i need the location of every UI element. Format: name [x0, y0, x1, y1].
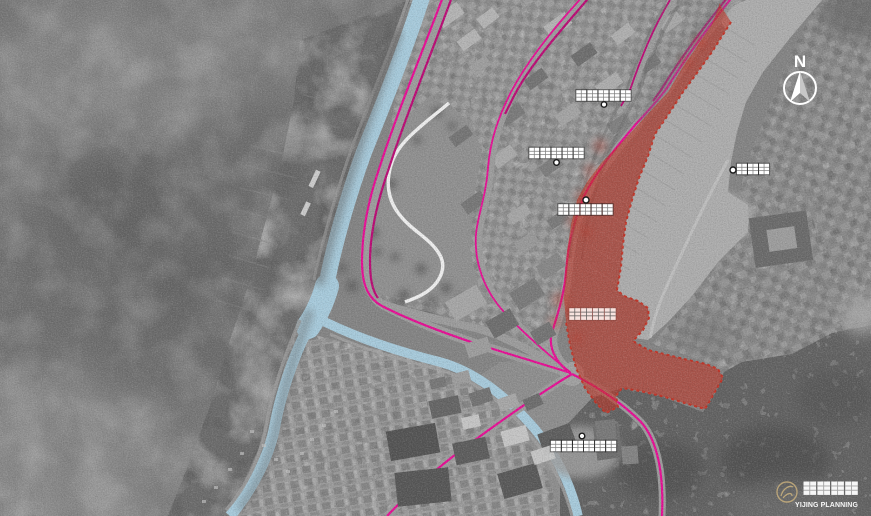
svg-text:N: N [794, 52, 806, 71]
svg-text:YIJING PLANNING: YIJING PLANNING [795, 502, 858, 509]
